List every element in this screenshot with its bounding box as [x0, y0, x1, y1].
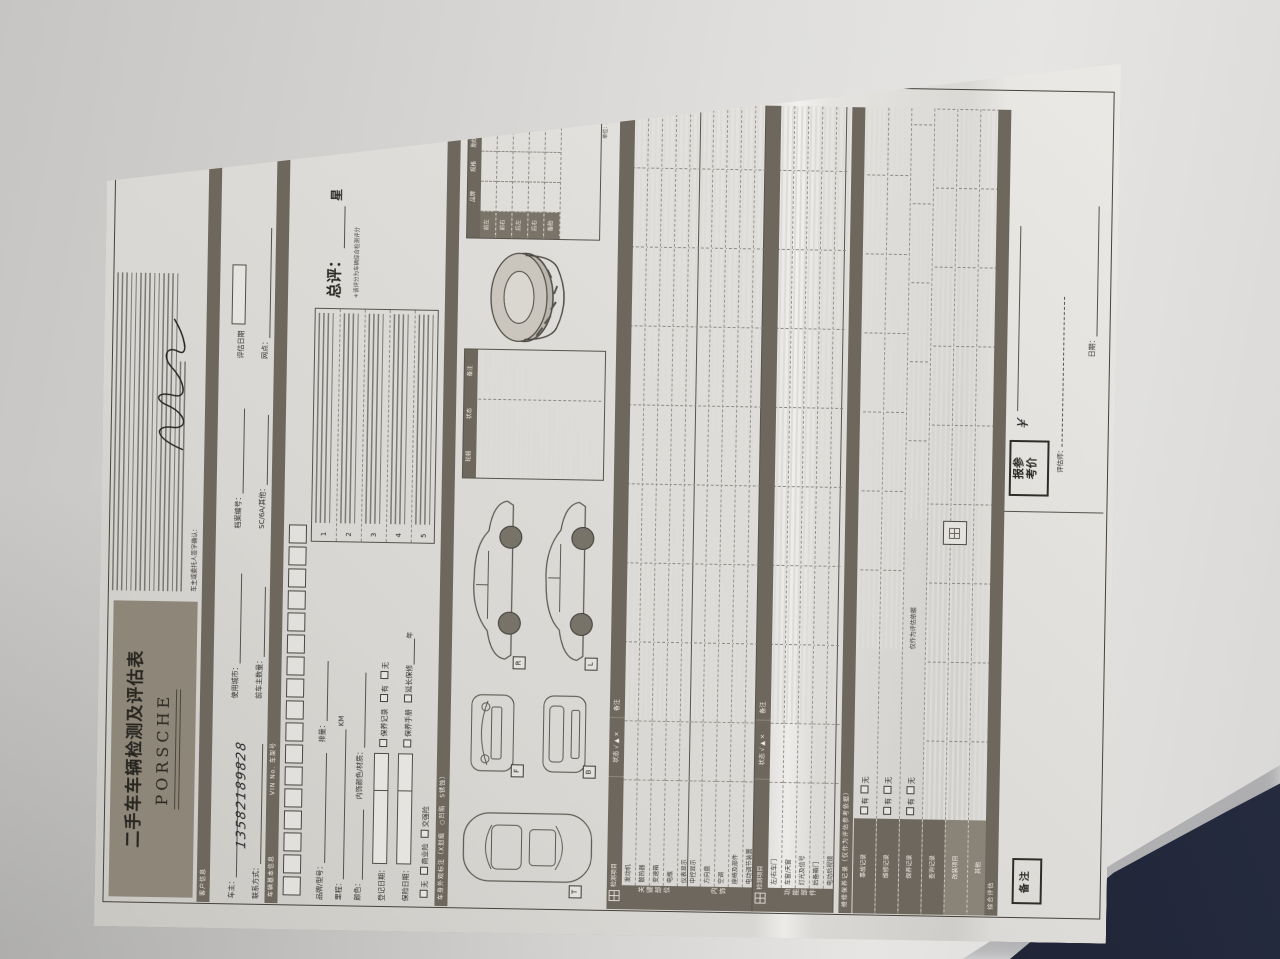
- handwritten-currency: ¥: [1014, 416, 1032, 430]
- handwritten-phone-number: 13582189828: [234, 740, 249, 850]
- record-yes-checkbox: [883, 807, 891, 815]
- wheel-table-cells: [476, 350, 604, 480]
- view-label-right: R: [513, 656, 526, 669]
- star-rating-table: 1 2 3 4 5: [311, 308, 439, 544]
- handwritten-signature: [142, 307, 205, 458]
- ins-date-field: 保险日期： 保养手册 延长保修年: [395, 551, 416, 901]
- ext-warranty-checkbox: [404, 695, 412, 703]
- color-field: 颜色： 内饰颜色/材质：: [352, 551, 368, 901]
- porsche-logo: PORSCHE: [151, 601, 175, 897]
- car-side-view-left: [533, 492, 600, 673]
- rating-row-5: 5: [412, 311, 440, 543]
- reference-price-box: 报参 考价: [1009, 440, 1050, 497]
- query-qr-icon: [943, 521, 967, 545]
- car-region-icon: [609, 890, 620, 901]
- remark-box: 备注: [1012, 858, 1043, 905]
- city-field: 使用城市：: [230, 528, 243, 698]
- tire-illustration: [478, 247, 590, 349]
- overall-rating-block: 总评： 星 ＊该评分为车辆综合检测评分: [323, 118, 363, 299]
- record-no-checkbox: [860, 785, 868, 793]
- inspection-form-paper: 二手车车辆检测及评估表 PORSCHE 车主或委托人签字确认： 客户信息 车主：…: [94, 46, 1121, 944]
- car-region-icon: [754, 893, 765, 904]
- record-yes-checkbox: [860, 806, 868, 814]
- ins-date-box: [396, 791, 412, 864]
- view-label-front: F: [511, 764, 524, 777]
- appraiser-field: 评估师：: [1053, 297, 1067, 473]
- status-legend: √ ▲ ×: [613, 731, 620, 748]
- brand-model-field: 品牌/型号： 排量：: [314, 550, 330, 900]
- record-no-checkbox: [883, 786, 891, 794]
- header-band: 二手车车辆检测及评估表 PORSCHE: [109, 600, 198, 897]
- ins-none-checkbox: [420, 890, 428, 898]
- bottom-divider: [1004, 511, 1103, 514]
- file-no-field: 档案编号：: [233, 358, 246, 528]
- overall-unit: 星: [330, 189, 344, 201]
- maint-no-checkbox: [380, 671, 388, 679]
- reg-date-box2: [373, 753, 389, 791]
- car-side-view-right: [461, 490, 528, 671]
- records-table: 事故记录 有无 维修记录 有无 保养记录 有无 仅作为评估依据 查询记录 改装项…: [852, 107, 999, 915]
- reg-date-field: 登记日期： 保养记录 有 无: [371, 551, 392, 901]
- vehicle-fields: 品牌/型号： 排量： 里程：KM 颜色： 内饰颜色/材质： 登记日期： 保养记录…: [308, 550, 435, 902]
- tire-unit-note: 单位：MM: [602, 115, 609, 139]
- price-line: [1008, 226, 1021, 411]
- view-label-left: L: [585, 658, 598, 671]
- tire-row: 备胎: [544, 93, 563, 239]
- maint-record-checkbox: [379, 738, 387, 746]
- view-label-back: B: [583, 766, 596, 779]
- overall-label: 总评：: [325, 253, 344, 298]
- wheel-table-header: 轮毂 状态 备注: [463, 349, 478, 477]
- photo-scene: 二手车车辆检测及评估表 PORSCHE 车主或委托人签字确认： 客户信息 车主：…: [0, 0, 1280, 959]
- ins-compulsory-checkbox: [421, 829, 429, 837]
- view-label-top: T: [569, 885, 582, 898]
- manual-checkbox: [403, 739, 411, 747]
- check-group-title: 关键部位: [621, 885, 686, 910]
- logo-caption-line: [174, 689, 181, 809]
- diagram-tire-band: T F B R: [450, 100, 614, 908]
- vin-label: VIN No. 车架号: [269, 742, 277, 795]
- wheel-check-table: 轮毂 状态 备注: [462, 348, 606, 480]
- record-yes-checkbox: [906, 807, 914, 815]
- maint-yes-checkbox: [380, 694, 388, 702]
- form-title: 二手车车辆检测及评估表: [118, 600, 148, 896]
- check-group-title: 功能部件: [767, 888, 832, 913]
- status-legend: √ ▲ ×: [759, 734, 766, 751]
- check-group-functions: 功能部件 左/右车门 车窗/天窗: [767, 106, 847, 913]
- date-field: 日期：: [1087, 206, 1100, 357]
- ins-date-box2: [397, 753, 413, 791]
- record-no-checkbox: [906, 786, 914, 794]
- check-group-title: 内饰: [686, 886, 751, 911]
- reg-date-box: [372, 791, 388, 864]
- tire-table-rows: 前左 前右 后左: [480, 92, 563, 239]
- eval-date-box: [232, 264, 247, 324]
- bottom-band: 备注 报参 考价 ¥ 评估师： 日期：: [997, 110, 1110, 918]
- mileage-field: 里程：KM: [333, 550, 349, 900]
- tire-table: 品牌 规格 胎纹深度 生产日期 前左 前右: [466, 90, 603, 240]
- eval-date-field: 评估日期: [231, 158, 249, 358]
- record-note: 仅作为评估依据: [903, 519, 927, 649]
- ins-commercial-checkbox: [420, 866, 428, 874]
